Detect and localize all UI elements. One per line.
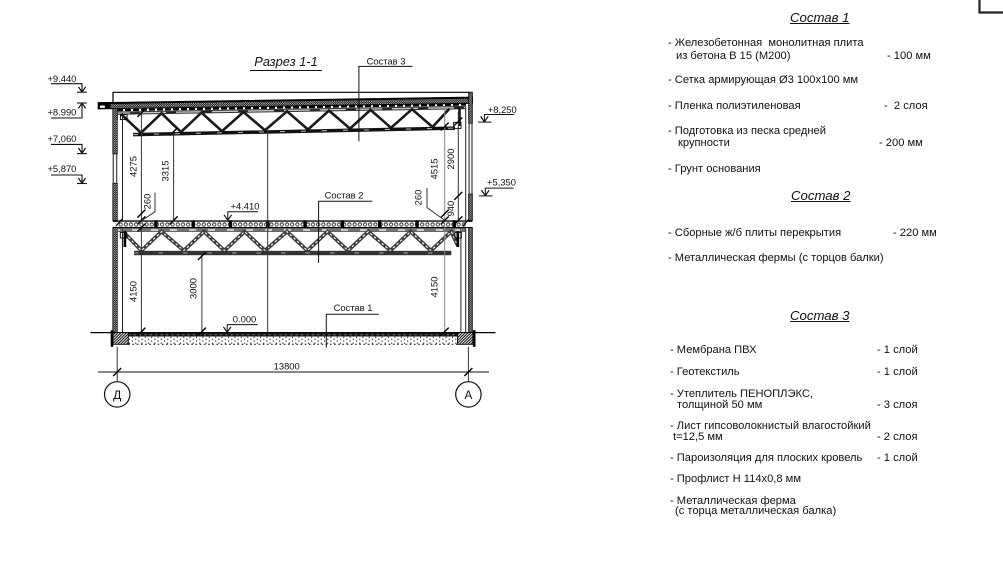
svg-text:+7,060: +7,060 (47, 133, 76, 144)
svg-text:+9.440: +9.440 (47, 73, 76, 84)
svg-text:+8.990: +8.990 (47, 106, 76, 117)
svg-text:13800: 13800 (274, 361, 300, 372)
svg-text:+8,250: +8,250 (488, 104, 517, 115)
svg-text:2900: 2900 (445, 149, 456, 170)
svg-text:Д: Д (113, 388, 121, 402)
svg-text:3315: 3315 (160, 161, 171, 182)
svg-text:Состав 3: Состав 3 (367, 56, 406, 67)
svg-text:4150: 4150 (128, 281, 139, 302)
svg-text:940: 940 (445, 201, 456, 217)
svg-text:260: 260 (413, 190, 424, 206)
svg-text:4275: 4275 (128, 156, 139, 177)
svg-text:4150: 4150 (429, 277, 440, 298)
svg-text:А: А (464, 388, 472, 402)
svg-text:0.000: 0.000 (233, 313, 256, 324)
svg-text:+4.410: +4.410 (231, 201, 260, 212)
svg-text:3000: 3000 (188, 278, 199, 299)
svg-text:+5,350: +5,350 (487, 176, 516, 187)
svg-text:Разрез 1-1: Разрез 1-1 (254, 54, 317, 69)
svg-text:260: 260 (142, 194, 153, 210)
svg-text:4515: 4515 (429, 159, 440, 180)
svg-text:+5,870: +5,870 (47, 163, 76, 174)
svg-text:Состав 1: Состав 1 (334, 302, 373, 313)
svg-text:Состав 2: Состав 2 (325, 189, 364, 200)
